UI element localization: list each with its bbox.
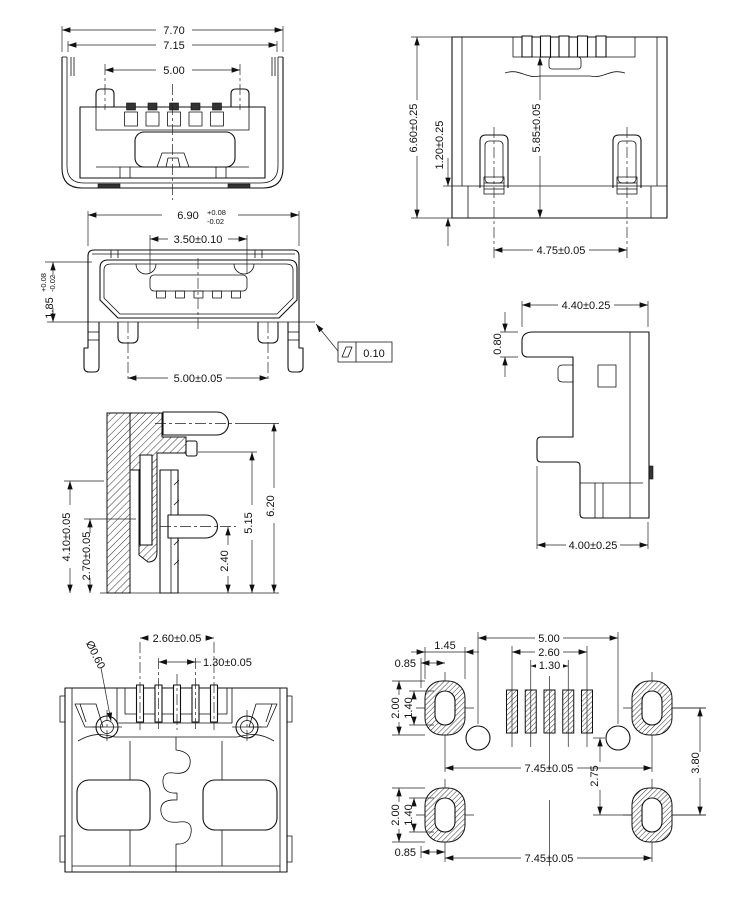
dim-footprint-pad-offset-top: 0.85 bbox=[395, 658, 416, 670]
front-view: 6.90 +0.08 -0.02 3.50±0.10 1.85 +0.08 -0… bbox=[39, 208, 392, 385]
flatness-symbol-icon bbox=[342, 347, 352, 357]
dim-front-shell-width-tol-minus: -0.02 bbox=[207, 217, 224, 226]
flatness-frame: 0.10 bbox=[338, 342, 392, 362]
dim-footprint-row-height: 3.80 bbox=[690, 752, 702, 773]
dim-footprint-pad-width: 1.45 bbox=[434, 640, 455, 652]
rear-recess bbox=[135, 132, 235, 167]
dim-rear-post-span: 5.00 bbox=[163, 65, 184, 77]
dim-top-flange-height: 1.20±0.25 bbox=[434, 121, 446, 170]
section-shield-wall bbox=[107, 413, 130, 593]
dim-front-shell-height-tol-minus: -0.02 bbox=[48, 275, 57, 292]
front-shell bbox=[88, 250, 299, 322]
section-latch-bump bbox=[186, 441, 197, 456]
footprint-view: 5.00 2.60 1.30 1.45 0.85 2.00 1.40 7.45±… bbox=[390, 632, 706, 866]
dim-footprint-pad-height-top: 2.00 bbox=[390, 697, 402, 718]
bottom-puzzle-seam bbox=[161, 737, 191, 872]
bottom-pad-right bbox=[203, 780, 277, 830]
top-view: 6.60±0.25 1.20±0.25 5.85±0.05 4.75±0.05 bbox=[408, 36, 667, 258]
rear-view: 7.70 7.15 5.00 bbox=[62, 25, 283, 200]
front-leg-left bbox=[84, 322, 99, 372]
dim-top-leg-span: 4.75±0.05 bbox=[537, 245, 586, 257]
front-opening-inner bbox=[104, 264, 293, 314]
dim-side-step-height: 0.80 bbox=[492, 333, 504, 354]
bottom-wing-left bbox=[75, 704, 103, 727]
section-view: 4.10±0.05 2.70±0.05 2.40 5.15 6.20 bbox=[61, 412, 279, 593]
front-tongue bbox=[150, 275, 247, 291]
front-leg-right bbox=[288, 322, 303, 372]
technical-drawing: 7.70 7.15 5.00 6.60±0.25 bbox=[0, 0, 750, 900]
flatness-leader bbox=[316, 324, 338, 351]
dim-footprint-pad-height-bot: 2.00 bbox=[390, 804, 402, 825]
dim-top-body-height: 5.85±0.05 bbox=[531, 104, 543, 153]
dim-section-inner-height: 2.70±0.05 bbox=[81, 532, 93, 581]
dim-footprint-pitch-v: 2.75 bbox=[589, 765, 601, 786]
dim-footprint-hole-height-bot: 1.40 bbox=[403, 804, 415, 825]
dim-front-shell-width-tol-plus: +0.08 bbox=[207, 208, 226, 217]
dim-bottom-hole-dia: Ø0.60 bbox=[83, 639, 107, 671]
footprint-hole-right bbox=[606, 726, 630, 750]
front-opening-outer bbox=[100, 260, 297, 318]
dim-section-pin-low: 2.40 bbox=[219, 550, 231, 571]
dim-front-shell-height: 1.85 bbox=[44, 297, 56, 318]
dim-footprint-row-width-bot: 7.45±0.05 bbox=[525, 853, 574, 865]
dim-rear-inner-width: 7.15 bbox=[163, 40, 184, 52]
flatness-value: 0.10 bbox=[363, 348, 384, 360]
dim-footprint-pads-inner: 1.30 bbox=[539, 660, 560, 672]
dim-top-overall-height: 6.60±0.25 bbox=[408, 104, 420, 153]
dim-footprint-pads-outer: 2.60 bbox=[538, 647, 559, 659]
footprint-hole-left bbox=[466, 726, 490, 750]
bottom-pad-left bbox=[77, 780, 150, 830]
dim-front-tongue-width: 3.50±0.10 bbox=[174, 234, 223, 246]
hole-dia-leader bbox=[101, 668, 111, 721]
top-latch bbox=[549, 57, 581, 69]
dim-footprint-row-width-mid: 7.45±0.05 bbox=[525, 763, 574, 775]
dim-bottom-pins-inner: 1.30±0.05 bbox=[203, 657, 252, 669]
dim-bottom-pins-outer: 2.60±0.05 bbox=[153, 633, 202, 645]
engineering-drawing-page: 7.70 7.15 5.00 6.60±0.25 bbox=[0, 0, 750, 900]
bottom-view: 2.60±0.05 1.30±0.05 Ø0.60 bbox=[60, 633, 292, 872]
dim-front-shell-width: 6.90 bbox=[177, 210, 198, 222]
side-view: 4.40±0.25 0.80 4.00±0.25 bbox=[492, 300, 653, 552]
dim-section-body-height: 4.10±0.05 bbox=[61, 513, 73, 562]
dim-section-pin-mid: 5.15 bbox=[243, 512, 255, 533]
rear-latch-bump bbox=[157, 153, 189, 167]
dim-side-bottom-width: 4.00±0.25 bbox=[569, 540, 618, 552]
dim-side-top-width: 4.40±0.25 bbox=[562, 300, 611, 312]
dim-footprint-pad-offset-bot: 0.85 bbox=[395, 847, 416, 859]
bottom-wing-right bbox=[249, 704, 277, 727]
dim-section-pin-top: 6.20 bbox=[265, 495, 277, 516]
dim-footprint-hole-height-top: 1.40 bbox=[403, 697, 415, 718]
side-pin-stub bbox=[558, 365, 573, 382]
side-window bbox=[598, 365, 616, 387]
dim-front-shell-height-tol-plus: +0.08 bbox=[39, 273, 48, 292]
dim-front-post-span: 5.00±0.05 bbox=[174, 373, 223, 385]
dim-footprint-hole-span: 5.00 bbox=[538, 633, 559, 645]
dim-rear-outer-width: 7.70 bbox=[163, 25, 184, 37]
